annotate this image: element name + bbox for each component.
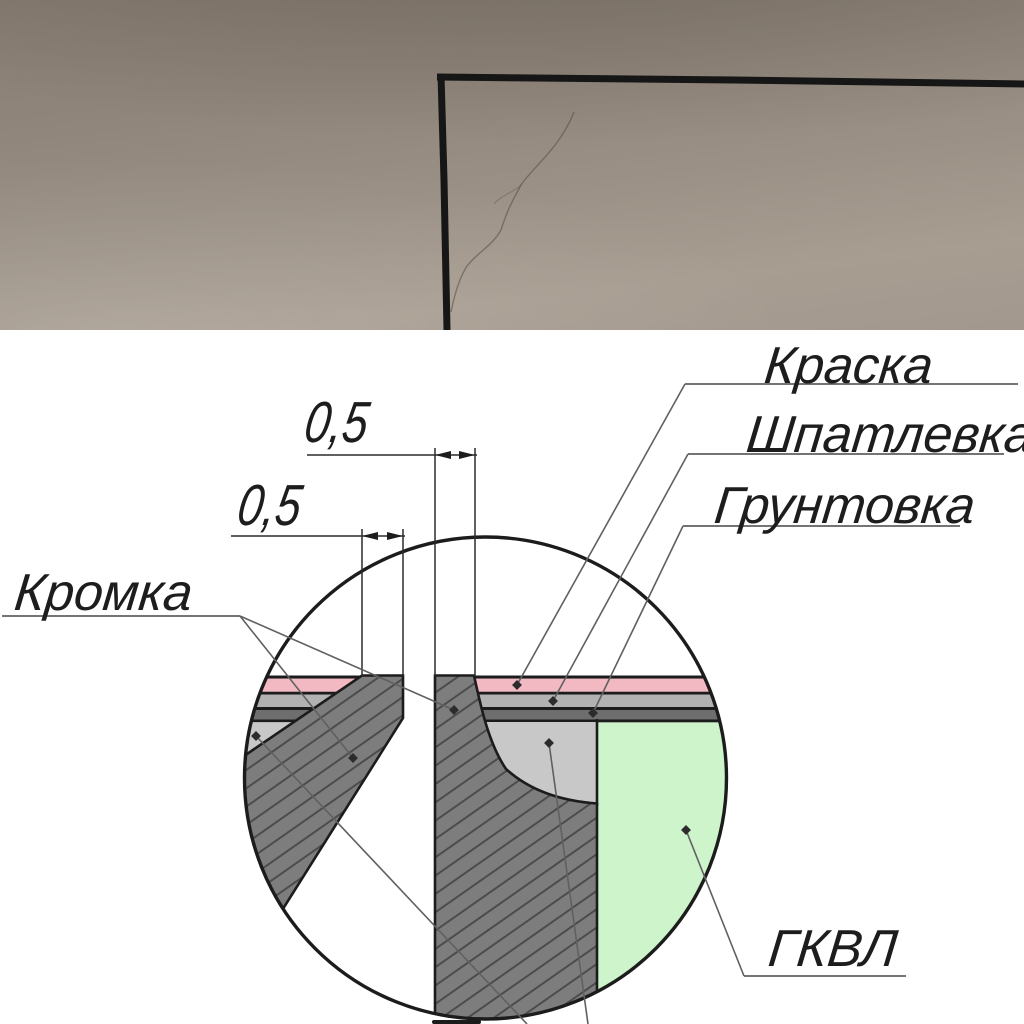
leader-putty — [553, 454, 688, 701]
dimension-arrows — [362, 451, 475, 540]
detail-circle-content — [232, 675, 733, 1024]
arrow-icon — [387, 532, 403, 540]
label-primer: Грунтовка — [712, 479, 978, 533]
label-paint: Краска — [762, 339, 936, 393]
paint-layer — [238, 679, 732, 692]
wall-crack-photo — [0, 0, 1024, 330]
arrow-icon — [459, 451, 475, 459]
cutoff-label-fragment — [432, 1020, 481, 1024]
label-board: ГКВЛ — [766, 922, 900, 976]
wall-crack — [451, 112, 574, 312]
leader-paint — [517, 384, 685, 685]
joint-detail-drawing: 0,5 0,5 Краска Шпатлевка Грунтовка Кромк… — [0, 330, 1024, 1024]
label-putty: Шпатлевка — [744, 408, 1024, 462]
crack-marker-overlay — [0, 0, 1024, 330]
marker-line-horizontal — [437, 77, 1024, 84]
arrow-icon — [362, 532, 378, 540]
marker-line-vertical — [441, 75, 447, 330]
putty-layer — [238, 695, 732, 707]
dimension-value-left: 0,5 — [234, 477, 306, 535]
surface-top-line — [238, 676, 732, 679]
dimension-value-right: 0,5 — [301, 394, 373, 452]
arrow-icon — [435, 451, 451, 459]
screenshot-root: 0,5 0,5 Краска Шпатлевка Грунтовка Кромк… — [0, 0, 1024, 1024]
label-edge: Кромка — [12, 566, 195, 620]
layer-separator-1 — [238, 692, 732, 695]
wall-crack-branch — [494, 185, 521, 204]
